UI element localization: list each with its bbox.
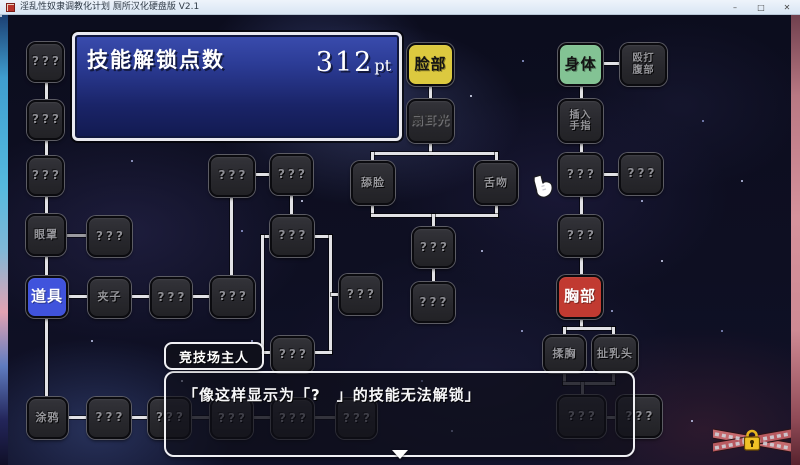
skill-node-blindfold[interactable]: 眼罩 [26,214,66,256]
skill-node-label: ??? [93,230,126,244]
skill-node-unknown-c1[interactable]: ??? [412,227,455,268]
skill-node-punch-belly[interactable]: 殴打 腹部 [620,43,667,86]
skill-node-unknown-m8[interactable]: ??? [339,274,382,315]
connector-line [131,295,151,298]
connector-line [602,62,622,65]
skill-node-label: ??? [344,288,377,302]
dialog-box[interactable]: 「像这样显示为「? 」的技能无法解锁」 [164,371,635,457]
maximize-button[interactable]: □ [748,0,774,15]
background-stars [0,15,2,17]
skill-node-unknown-m6[interactable]: ??? [270,154,313,195]
connector-line [290,194,293,217]
game-window: 淫乱性奴隶调教化计划 厕所汉化硬盘版 V2.1 – □ ✕ ?????????眼… [0,0,800,465]
connector-line [45,82,48,102]
skill-node-label: ??? [29,55,62,69]
connector-line [313,351,332,354]
skill-points-panel: 技能解锁点数 312pt [72,32,402,141]
skill-node-unknown-l1[interactable]: ??? [27,42,64,82]
skill-node-items[interactable]: 道具 [26,276,68,318]
background-right-art [791,15,800,465]
connector-line [66,416,89,419]
speaker-name: 竞技场主人 [179,347,249,366]
app-icon [6,3,15,12]
window-titlebar: 淫乱性奴隶调教化计划 厕所汉化硬盘版 V2.1 – □ ✕ [0,0,800,15]
skill-node-face[interactable]: 脸部 [407,43,454,86]
skill-node-unknown-r2[interactable]: ??? [619,153,663,195]
skill-node-label: 舌吻 [484,177,508,190]
locked-chest-icon[interactable] [713,427,791,455]
skill-node-label: 眼罩 [34,229,58,242]
skill-node-unknown-r1[interactable]: ??? [558,153,603,196]
skill-node-lick-face[interactable]: 舔脸 [351,161,395,205]
skill-node-label: ??? [29,113,62,127]
speaker-nameplate: 竞技场主人 [164,342,264,370]
connector-line [230,196,233,278]
skill-node-label: 插入 手指 [570,110,592,133]
connector-line [192,295,212,298]
panel-title: 技能解锁点数 [87,44,225,74]
skill-node-label: 涂鸦 [36,412,60,425]
skill-node-insert-finger[interactable]: 插入 手指 [558,99,603,143]
connector-line [580,257,583,277]
points-unit: pt [374,56,391,75]
window-title: 淫乱性奴隶调教化计划 厕所汉化硬盘版 V2.1 [20,0,199,15]
skill-node-label: ??? [216,290,249,304]
hand-cursor-icon [531,174,555,200]
skill-node-label: 脸部 [414,56,446,73]
skill-node-unknown-m5[interactable]: ??? [209,155,255,197]
continue-indicator-icon [392,450,408,459]
skill-node-clamps[interactable]: 夹子 [88,277,131,318]
skill-node-label: ??? [564,229,597,243]
points-display: 312pt [316,47,391,78]
skill-node-unknown-r3[interactable]: ??? [558,215,603,257]
skill-node-label: 殴打 腹部 [633,53,655,76]
skill-node-unknown-m3[interactable]: ??? [150,277,192,318]
skill-node-label: 揉胸 [553,348,577,361]
skill-node-label: ??? [625,167,658,181]
skill-node-label: ??? [276,229,309,243]
skill-node-pull-nipple[interactable]: 扯乳头 [592,335,638,373]
skill-node-body[interactable]: 身体 [558,43,603,86]
skill-node-unknown-c2[interactable]: ??? [411,282,455,323]
connector-line [261,235,264,354]
skill-node-unknown-m9[interactable]: ??? [271,336,314,373]
skill-node-label: ??? [93,411,126,425]
dialog-text: 「像这样显示为「? 」的技能无法解锁」 [183,384,633,405]
skill-node-rub-breast[interactable]: 揉胸 [543,335,586,373]
skill-node-label: ??? [155,291,188,305]
connector-line [45,317,48,398]
skill-node-label: ??? [417,241,450,255]
skill-node-label: 扇耳光 [411,114,450,128]
points-value: 312 [316,47,374,78]
skill-node-label: 道具 [31,288,63,305]
skill-node-label: ??? [216,169,249,183]
connector-line [563,327,615,330]
connector-line [130,416,149,419]
skill-node-label: ??? [276,348,309,362]
skill-node-breast[interactable]: 胸部 [557,275,603,319]
background-left-art [0,15,8,465]
minimize-button[interactable]: – [722,0,748,15]
skill-node-label: ??? [417,296,450,310]
skill-node-unknown-m7[interactable]: ??? [270,215,314,257]
connector-line [371,152,498,155]
skill-node-unknown-b1[interactable]: ??? [87,397,131,439]
skill-node-unknown-m1[interactable]: ??? [87,216,132,257]
connector-line [45,256,48,277]
skill-node-tongue-kiss[interactable]: 舌吻 [474,161,518,205]
skill-node-unknown-l2[interactable]: ??? [27,100,64,140]
skill-node-unknown-l3[interactable]: ??? [27,156,64,196]
connector-line [67,295,90,298]
skill-node-slap-face[interactable]: 扇耳光 [407,99,454,143]
skill-node-label: ??? [275,168,308,182]
skill-node-label: 身体 [564,56,596,73]
skill-node-label: 胸部 [564,288,596,305]
skill-node-doodle[interactable]: 涂鸦 [27,397,68,439]
connector-line [66,234,89,237]
connector-line [432,214,435,228]
skill-node-label: 扯乳头 [597,348,633,361]
skill-node-label: ??? [564,168,597,182]
skill-node-label: 舔脸 [361,177,385,190]
connector-line [45,196,48,216]
skill-node-label: 夹子 [98,291,122,304]
skill-node-label: ??? [29,169,62,183]
skill-node-unknown-m4[interactable]: ??? [210,276,255,318]
connector-line [432,267,435,283]
close-button[interactable]: ✕ [774,0,800,15]
connector-line [580,196,583,217]
